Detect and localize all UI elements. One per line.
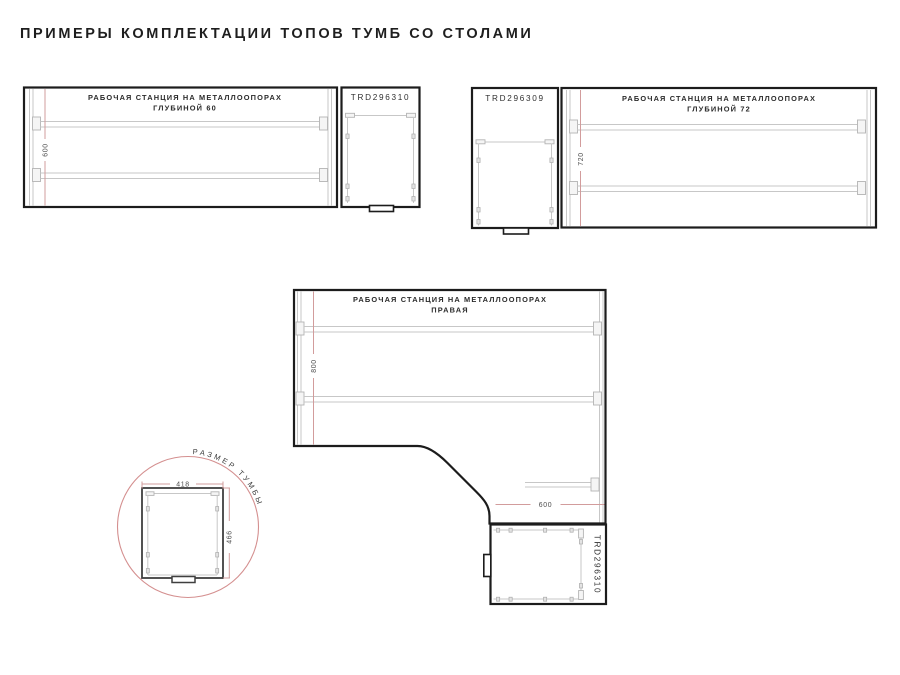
desk-title-line2: ПРАВАЯ — [431, 306, 468, 315]
dimension-label: 466 — [227, 530, 234, 544]
support-rail-bottom — [33, 169, 328, 182]
cabinet-size-detail: РАЗМЕР ТУМБЫ — [118, 447, 265, 597]
dimension-label: 800 — [311, 359, 318, 373]
support-rail-top — [33, 117, 328, 130]
support-rail-top — [296, 322, 602, 335]
cabinet-outline — [491, 525, 607, 605]
dimension-label: 720 — [578, 152, 585, 166]
catalog-page: ПРИМЕРЫ КОМПЛЕКТАЦИИ ТОПОВ ТУМБ СО СТОЛА… — [0, 0, 900, 675]
desk-title-line1: РАБОЧАЯ СТАНЦИЯ НА МЕТАЛЛООПОРАХ — [88, 93, 282, 102]
height-dimension: 466 — [223, 488, 234, 578]
workstation-depth60-diagram: 600 РАБОЧАЯ СТАНЦИЯ НА МЕТАЛЛООПОРАХ ГЛУ… — [24, 88, 420, 212]
cabinet-code-label: TRD296309 — [485, 94, 544, 103]
desk-title-line2: ГЛУБИНОЙ 72 — [687, 105, 751, 114]
depth-dimension-left: 800 — [311, 292, 318, 445]
dimension-label: 600 — [539, 502, 553, 509]
cabinet-outline — [142, 488, 223, 578]
cabinet-outline — [342, 88, 420, 208]
desk-title-line1: РАБОЧАЯ СТАНЦИЯ НА МЕТАЛЛООПОРАХ — [622, 94, 816, 103]
cabinet-code-label: TRD296310 — [351, 93, 410, 102]
support-rail-top — [570, 120, 866, 133]
cabinet-outline — [472, 88, 558, 228]
cabinet-handle — [484, 555, 491, 577]
cabinet-top-view: TRD296309 — [472, 88, 558, 234]
cabinet-handle — [172, 577, 195, 583]
corner-workstation-diagram: 800 600 РАБОЧАЯ СТАНЦИЯ НА МЕТАЛЛООПОРАХ… — [294, 290, 606, 604]
depth-dimension: 720 — [578, 90, 585, 226]
support-rail-middle — [296, 392, 602, 405]
cabinet-top-view: TRD296310 — [342, 88, 420, 212]
depth-dimension-right: 600 — [496, 502, 605, 509]
cabinet-top-view-rotated: TRD296310 — [484, 525, 606, 605]
desk-title-line1: РАБОЧАЯ СТАНЦИЯ НА МЕТАЛЛООПОРАХ — [353, 295, 547, 304]
cabinet-code-label: TRD296310 — [593, 535, 602, 594]
dimension-label: 600 — [42, 143, 49, 157]
depth-dimension: 600 — [42, 89, 49, 206]
dimension-label: 418 — [176, 482, 190, 489]
desk-title-line2: ГЛУБИНОЙ 60 — [153, 104, 217, 113]
support-rail-bottom — [570, 182, 866, 195]
cabinet-handle — [370, 206, 394, 212]
support-rail-return — [525, 478, 599, 491]
desk-top-outline — [294, 290, 606, 524]
cabinet-top-view — [142, 488, 223, 583]
cabinet-handle — [504, 228, 529, 234]
detail-circle-label: РАЗМЕР ТУМБЫ — [192, 447, 265, 507]
workstation-depth72-diagram: TRD296309 — [472, 88, 876, 234]
diagram-canvas: 600 РАБОЧАЯ СТАНЦИЯ НА МЕТАЛЛООПОРАХ ГЛУ… — [0, 0, 900, 675]
